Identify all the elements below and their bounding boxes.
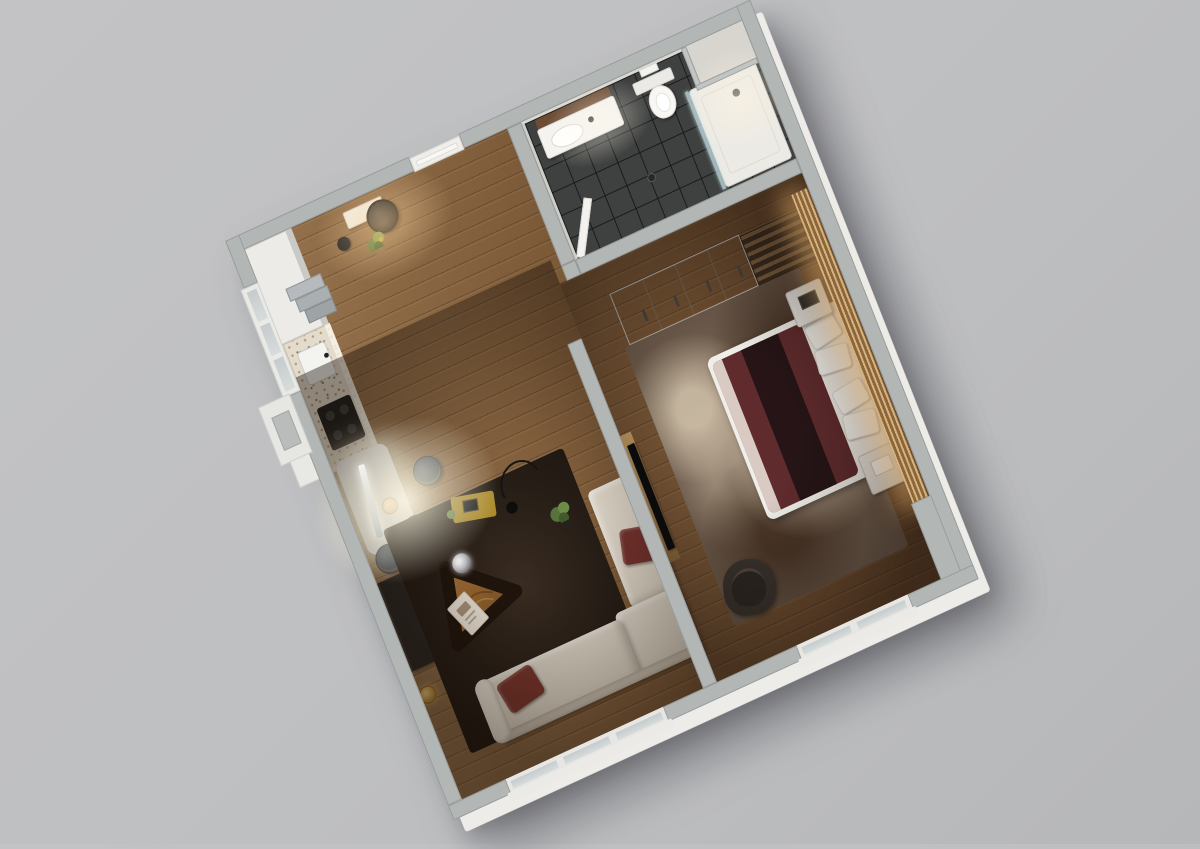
apartment-render [194, 0, 985, 838]
floorplan-scene [0, 0, 1200, 844]
